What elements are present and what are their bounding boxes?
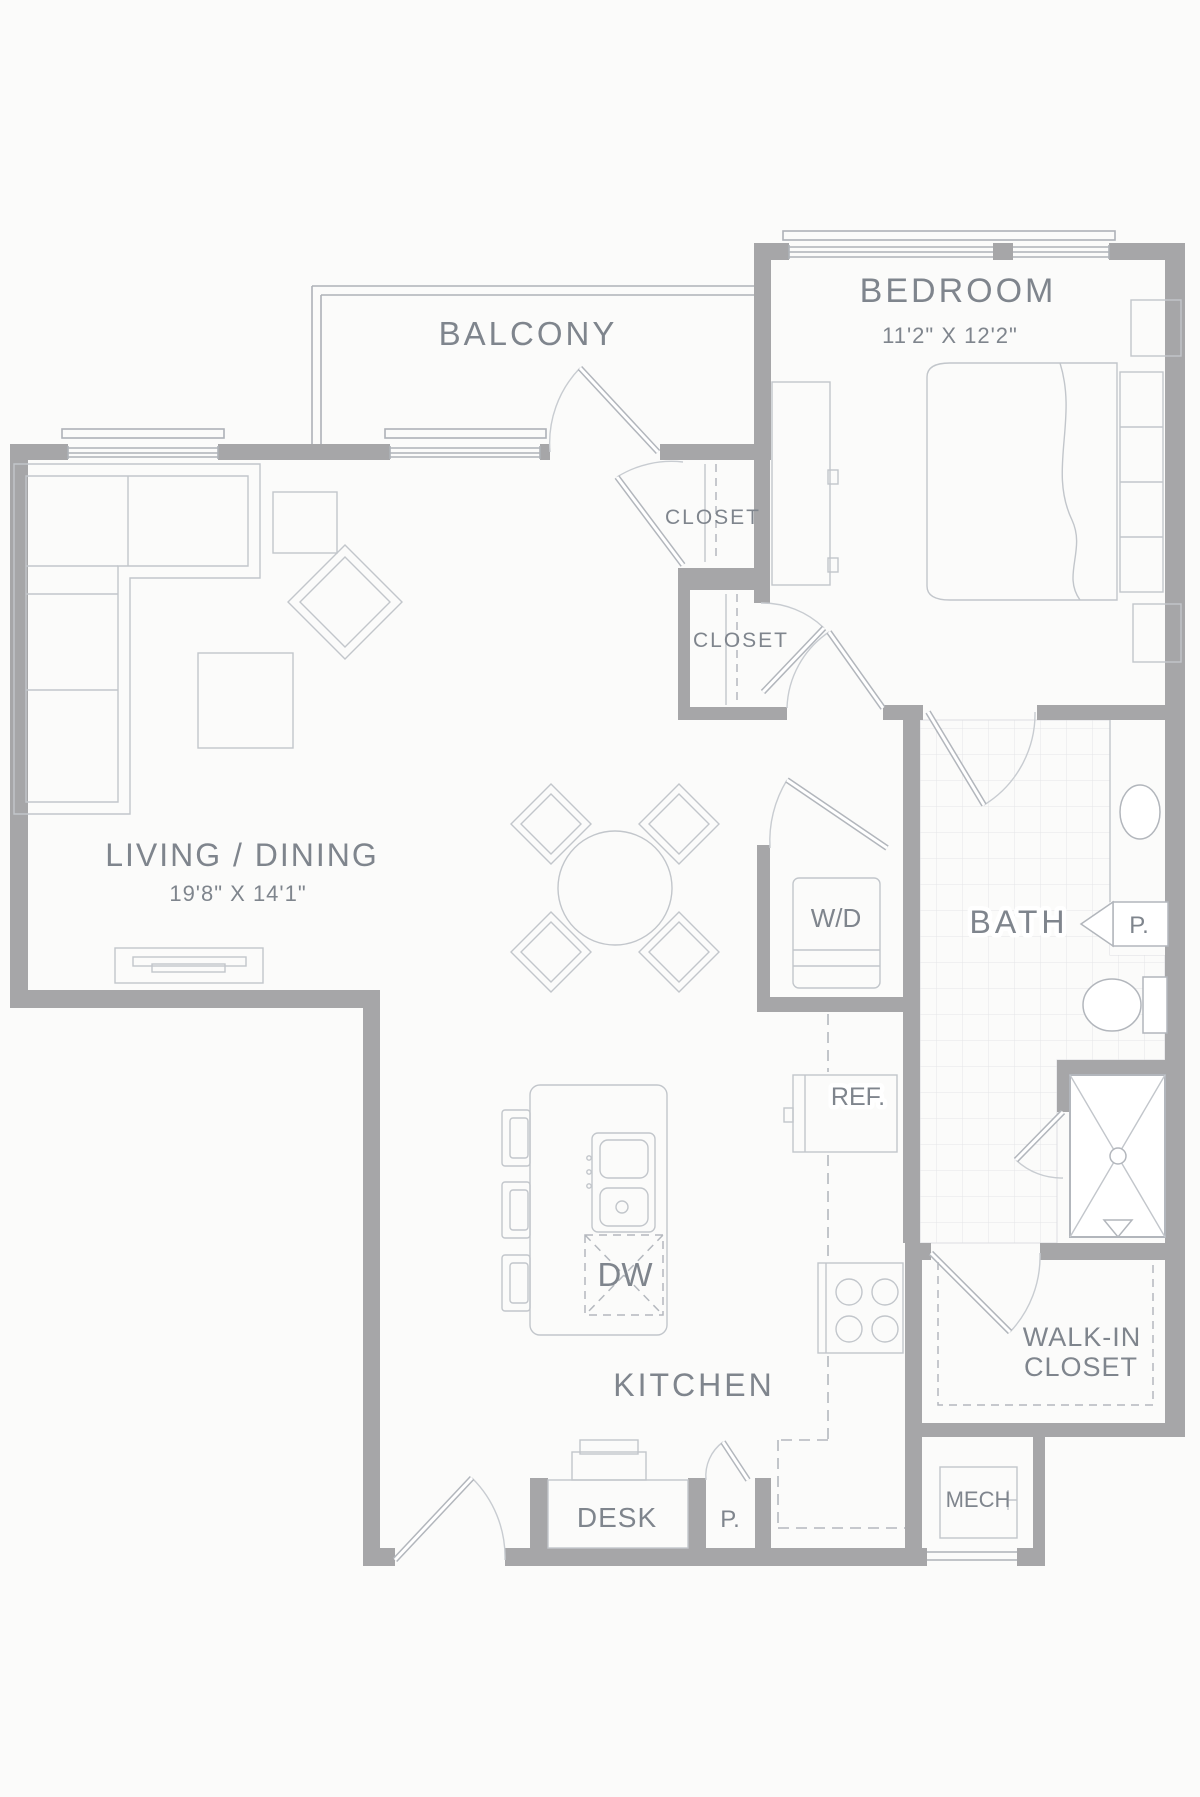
blanket-fold xyxy=(1060,363,1080,600)
bath-cabinet-label: P. xyxy=(1129,912,1149,939)
balcony-label: BALCONY xyxy=(439,315,618,352)
bath-label: BATH xyxy=(970,904,1069,940)
walk-in-closet-label-line2: CLOSET xyxy=(1024,1352,1138,1382)
island-sink xyxy=(587,1133,655,1232)
closet-lower-label: CLOSET xyxy=(693,629,789,652)
bedroom-furniture xyxy=(772,300,1181,662)
dining-set xyxy=(511,784,719,992)
dresser xyxy=(772,382,838,585)
washer-dryer-door xyxy=(770,780,887,848)
living-window-left xyxy=(62,429,224,460)
desk-label: DESK xyxy=(577,1502,657,1533)
washer-dryer-label: W/D xyxy=(811,903,862,933)
bar-stool xyxy=(502,1182,530,1238)
floor-plan-page: BALCONY BEDROOM 11'2" X 12'2" LIVING / D… xyxy=(0,0,1200,1797)
balcony-railing xyxy=(312,286,754,444)
bar-stool xyxy=(502,1110,530,1166)
balcony-door xyxy=(550,368,658,452)
bedroom-door xyxy=(787,632,883,708)
sink xyxy=(1120,785,1160,839)
armchair xyxy=(288,545,402,659)
dishwasher-label: DW xyxy=(598,1256,654,1293)
kitchen-island xyxy=(530,1085,667,1335)
toilet xyxy=(1083,977,1167,1033)
entry-door xyxy=(395,1478,505,1560)
washer-dryer-unit xyxy=(793,878,880,988)
headboard xyxy=(1120,372,1163,592)
dining-chair xyxy=(639,784,719,864)
floor-plan: BALCONY BEDROOM 11'2" X 12'2" LIVING / D… xyxy=(0,0,1200,1797)
living-dining-dimensions: 19'8" X 14'1" xyxy=(169,881,306,906)
pantry-door xyxy=(706,1442,748,1480)
dining-chair xyxy=(511,912,591,992)
bedroom-window xyxy=(783,231,1115,260)
closet-upper-label: CLOSET xyxy=(665,506,761,529)
bedroom-dimensions: 11'2" X 12'2" xyxy=(882,323,1018,348)
mech-louver-door xyxy=(927,1552,1017,1560)
bar-stool xyxy=(502,1255,530,1311)
side-table xyxy=(273,492,337,553)
dining-chair xyxy=(511,784,591,864)
walk-in-closet-door xyxy=(931,1253,1040,1332)
bedroom-label: BEDROOM xyxy=(860,272,1057,310)
kitchen-label: KITCHEN xyxy=(613,1367,774,1403)
stove xyxy=(818,1263,903,1353)
living-dining-label: LIVING / DINING xyxy=(105,837,379,873)
dining-chair xyxy=(639,912,719,992)
bed xyxy=(927,363,1117,600)
sectional-sofa xyxy=(14,464,260,814)
walk-in-closet-label-line1: WALK-IN xyxy=(1023,1322,1142,1352)
tv-console xyxy=(115,948,263,983)
coffee-table xyxy=(198,653,293,748)
refrigerator-label: REF. xyxy=(831,1083,885,1111)
mech-label: MECH xyxy=(946,1487,1011,1512)
living-window-right xyxy=(385,429,546,460)
shower xyxy=(1070,1075,1165,1237)
pantry-label: P. xyxy=(720,1506,740,1533)
